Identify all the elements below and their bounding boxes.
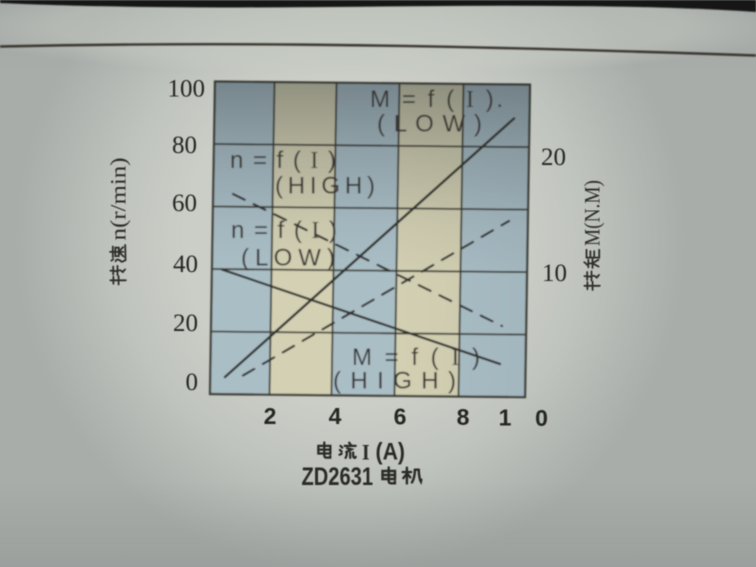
- svg-text:20: 20: [541, 144, 566, 171]
- svg-text:10: 10: [542, 260, 567, 287]
- svg-text:M = f ( I ).: M = f ( I ).: [370, 86, 503, 113]
- svg-text:6: 6: [394, 404, 407, 430]
- svg-text:60: 60: [172, 190, 197, 217]
- svg-text:4: 4: [329, 403, 342, 429]
- svg-text:2: 2: [264, 403, 277, 429]
- svg-text:n = f ( I ): n = f ( I ): [230, 147, 336, 174]
- svg-text:40: 40: [173, 251, 198, 278]
- svg-text:M(N.M): M(N.M): [580, 180, 605, 246]
- svg-text:0: 0: [186, 369, 199, 396]
- svg-text:( H I G H ): ( H I G H ): [333, 368, 456, 395]
- svg-text:0: 0: [535, 405, 548, 431]
- svg-text:( L O W ): ( L O W ): [241, 245, 335, 272]
- svg-text:8: 8: [457, 404, 470, 430]
- svg-text:I (A): I (A): [362, 439, 405, 466]
- svg-text:( H I G H ): ( H I G H ): [275, 173, 375, 200]
- svg-text:n(r/min): n(r/min): [106, 158, 131, 241]
- svg-text:n = f ( I ): n = f ( I ): [231, 217, 337, 244]
- svg-text:80: 80: [172, 132, 197, 159]
- svg-text:1: 1: [499, 405, 512, 431]
- svg-text:20: 20: [173, 310, 198, 337]
